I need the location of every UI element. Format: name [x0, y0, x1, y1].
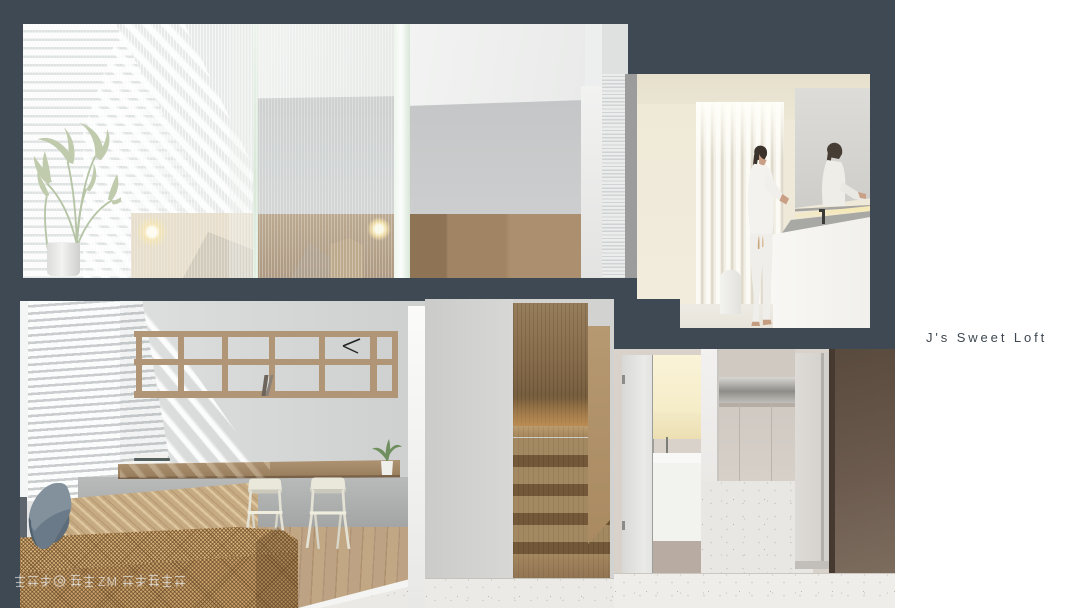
svg-text:ZM: ZM: [98, 575, 118, 589]
